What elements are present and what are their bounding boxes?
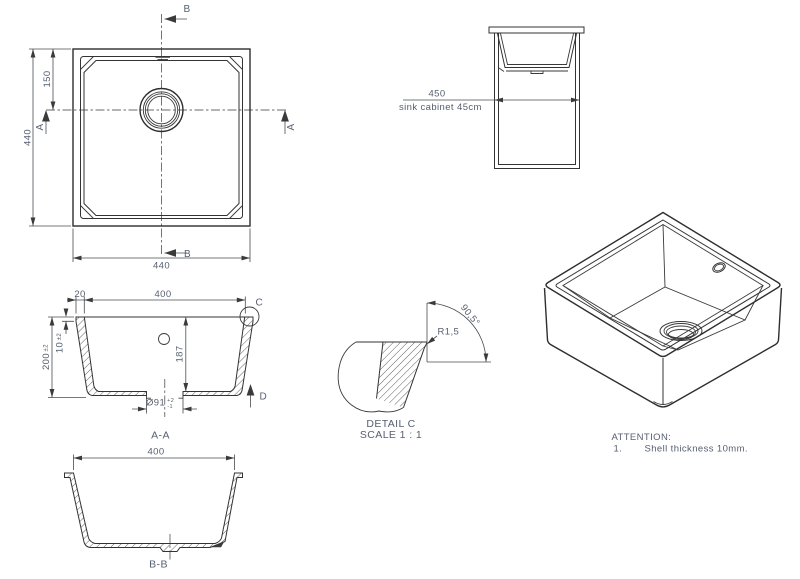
- detail-c-scale: SCALE 1 : 1: [360, 429, 422, 441]
- aa-overflow-hole: [159, 334, 170, 345]
- dim-overall-height-text: 440: [23, 129, 34, 146]
- section-label-a-left: A: [35, 123, 46, 130]
- cabinet-label-text: sink cabinet 45cm: [399, 102, 482, 113]
- iso-drain: [660, 322, 702, 341]
- iso-inner-rim: [556, 220, 770, 350]
- aa-title: A-A: [151, 430, 170, 442]
- detail-hatch: [377, 342, 428, 408]
- section-a-a: 20 400 200±2 10±2 187: [41, 289, 267, 442]
- bb-shell: [65, 473, 243, 552]
- bb-dim-width: 400: [74, 447, 235, 471]
- technical-drawing-sheet: B B A A 440: [0, 0, 800, 579]
- dim-cabinet-width: 450 sink cabinet 45cm: [399, 89, 580, 114]
- cabinet-inner: [499, 33, 576, 165]
- section-marker-a-right: A: [281, 110, 297, 134]
- attention-note-number: 1.: [614, 444, 623, 455]
- section-marker-a-left: A: [35, 110, 50, 134]
- aa-view-arrow-d-label: D: [260, 392, 268, 403]
- section-marker-b-top: B: [165, 4, 191, 23]
- dim-cabinet-width-text: 450: [428, 89, 445, 100]
- attention-note-text: Shell thickness 10mm.: [645, 444, 748, 455]
- aa-dim-top: 20 400: [67, 289, 245, 314]
- mounting-clip: [499, 68, 504, 72]
- aa-dim-shell: 10±2: [55, 309, 75, 354]
- overflow-mark: [156, 57, 171, 59]
- sink-in-cabinet: [498, 34, 577, 74]
- detail-radius-text: R1,5: [438, 327, 460, 338]
- drawing-svg: B B A A 440: [0, 0, 800, 579]
- bb-title: B-B: [149, 559, 168, 571]
- aa-dim-rim-width-text: 20: [74, 289, 85, 300]
- attention-title: ATTENTION:: [612, 432, 672, 443]
- isometric-view: [545, 213, 782, 407]
- iso-bowl-corner-edges: [563, 225, 763, 351]
- section-label-a-right: A: [286, 123, 297, 130]
- dim-drain-from-top: 150: [42, 49, 55, 110]
- attention-note: ATTENTION: 1. Shell thickness 10mm.: [612, 432, 748, 455]
- section-label-b-top: B: [184, 4, 191, 15]
- detail-angle-text: 90,5°: [458, 303, 482, 329]
- aa-detail-c-label: C: [256, 298, 264, 309]
- aa-dim-drain-text: Ø91+2-1: [146, 398, 174, 411]
- iso-bowl-top-edge: [563, 225, 763, 347]
- aa-left-shell: [76, 317, 147, 396]
- aa-dim-height-text: 200±2: [41, 344, 52, 370]
- iso-overflow-hole: [711, 261, 726, 274]
- countertop-slab: [489, 27, 584, 33]
- dim-drain-from-top-text: 150: [42, 70, 53, 87]
- aa-dim-drain: Ø91+2-1: [132, 398, 197, 414]
- aa-dim-depth-text: 187: [175, 345, 186, 362]
- section-b-b: 400 B-B: [65, 447, 243, 571]
- cabinet-outer: [495, 33, 580, 169]
- cabinet-view: 450 sink cabinet 45cm: [399, 27, 584, 169]
- aa-dim-shell-text: 10±2: [55, 333, 66, 354]
- dim-overall-width-text: 440: [153, 261, 170, 272]
- detail-radius-dim: R1,5: [426, 327, 460, 346]
- aa-view-arrow-d: D: [247, 384, 268, 408]
- plan-view: B B A A 440: [23, 4, 298, 272]
- aa-right-shell: [183, 317, 253, 396]
- aa-dim-inner-width-text: 400: [154, 289, 171, 300]
- bb-dim-width-text: 400: [147, 447, 164, 458]
- detail-c-view: 90,5° R1,5 DETAIL C SCALE 1 : 1: [338, 301, 491, 441]
- aa-dim-depth: 187: [175, 317, 189, 392]
